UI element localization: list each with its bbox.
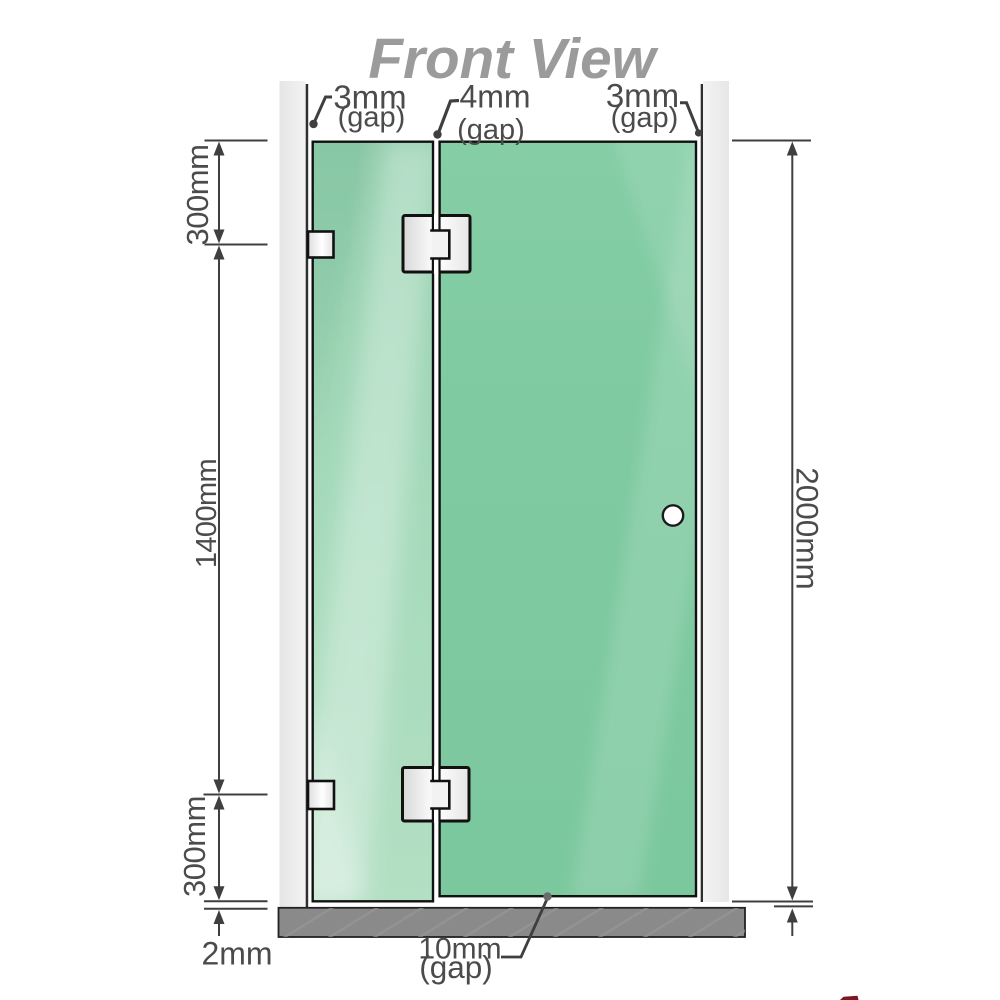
svg-text:(gap): (gap) [338, 102, 406, 134]
svg-text:2000mm: 2000mm [790, 467, 826, 590]
svg-text:300mm: 300mm [177, 796, 212, 897]
svg-text:4mm: 4mm [459, 79, 530, 115]
svg-text:(gap): (gap) [611, 102, 679, 134]
svg-text:2mm: 2mm [201, 936, 272, 972]
svg-text:1400mm: 1400mm [191, 459, 223, 568]
svg-text:300mm: 300mm [180, 145, 215, 246]
svg-text:(gap): (gap) [419, 949, 493, 985]
svg-text:(gap): (gap) [457, 114, 525, 146]
